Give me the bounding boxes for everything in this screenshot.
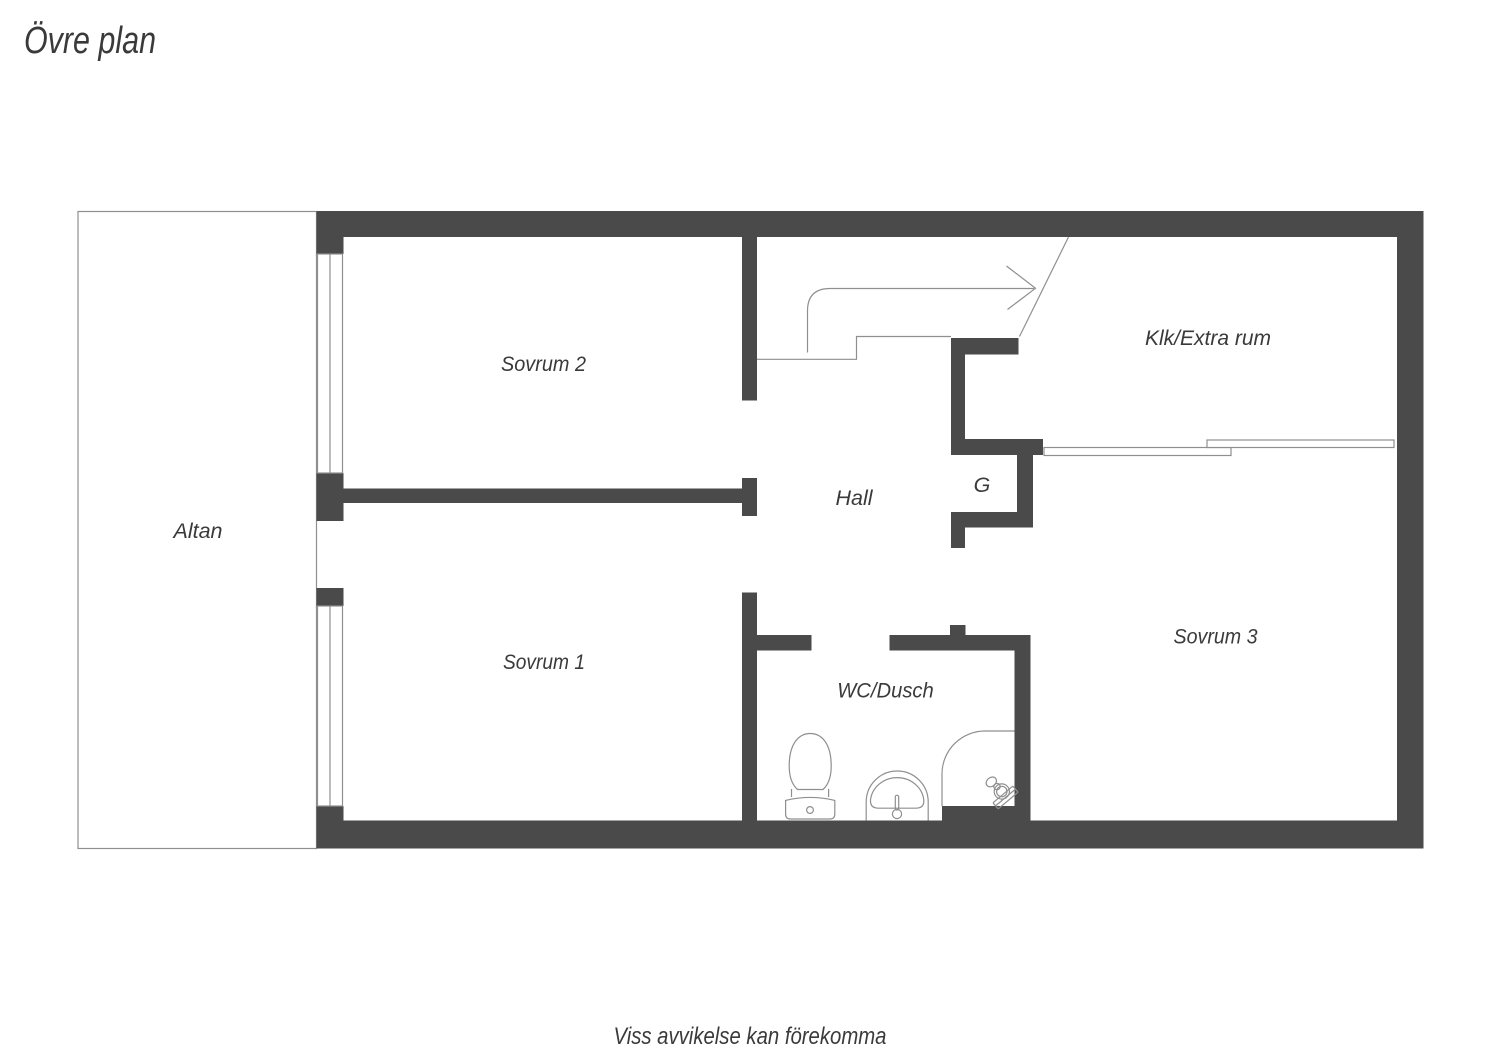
svg-text:WC/Dusch: WC/Dusch [837,679,934,703]
svg-text:Sovrum 3: Sovrum 3 [1174,625,1258,649]
svg-text:Hall: Hall [835,486,873,510]
svg-text:Övre plan: Övre plan [24,20,156,62]
svg-text:Sovrum 2: Sovrum 2 [501,352,586,376]
svg-text:Sovrum 1: Sovrum 1 [503,650,585,674]
svg-text:Altan: Altan [171,519,222,543]
svg-text:Viss avvikelse kan förekomma: Viss avvikelse kan förekomma [614,1023,887,1050]
svg-text:G: G [974,473,991,497]
svg-text:Klk/Extra rum: Klk/Extra rum [1145,326,1271,350]
